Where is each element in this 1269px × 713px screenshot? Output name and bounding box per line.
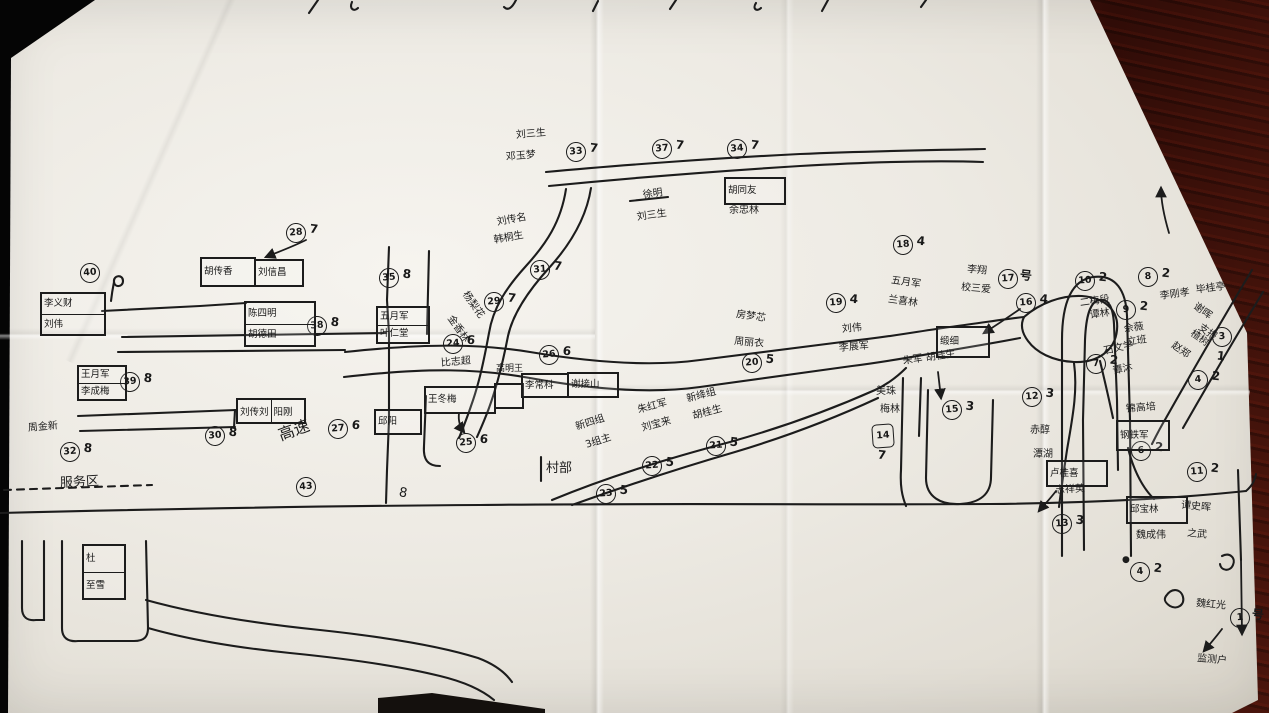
name-label: 志祥英 xyxy=(1055,484,1085,496)
group-number: 5 xyxy=(665,455,675,470)
name-label: 比志超 xyxy=(441,356,472,369)
household-number-circle: 43 xyxy=(295,476,316,497)
name-label: 新四组 xyxy=(574,414,606,433)
group-number: 7 xyxy=(507,291,517,306)
household-number-circle: 26 xyxy=(538,344,559,365)
household-number-circle: 11 xyxy=(1186,461,1207,482)
household-number-circle: 9 xyxy=(1115,299,1136,320)
house-name: 王月军 xyxy=(79,367,125,383)
group-number: 2 xyxy=(1098,270,1108,285)
group-number: 8 xyxy=(83,441,93,456)
house-box: 刘信昌 xyxy=(254,259,304,287)
house-box: 陈四明胡德田 xyxy=(244,301,316,347)
name-label: 魏成伟 xyxy=(1136,531,1166,541)
group-number: 6 xyxy=(479,432,489,447)
name-label: 朱军 胡桂生 xyxy=(902,350,956,367)
house-name: 胡传香 xyxy=(202,259,254,285)
group-number: 2 xyxy=(1139,299,1149,314)
household-number-circle: 1 xyxy=(1229,607,1250,628)
group-number: 号 xyxy=(1019,266,1033,284)
household-number-circle: 7 xyxy=(1085,353,1106,374)
group-number: 7 xyxy=(553,259,563,274)
name-label: 刘宝来 xyxy=(641,416,673,433)
group-number: 6 xyxy=(351,418,361,433)
household-number-circle: 29 xyxy=(483,291,504,312)
house-name: 杜 xyxy=(84,546,124,572)
name-label: 锦高培 xyxy=(1126,402,1157,415)
household-number-circle: 17 xyxy=(997,268,1018,289)
house-name: 邱阳 xyxy=(376,411,420,433)
house-box: 邱宝林 xyxy=(1126,496,1188,524)
household-number-circle: 35 xyxy=(378,267,399,288)
house-box: 钢铁军 xyxy=(1116,420,1170,451)
household-number-circle: 33 xyxy=(565,141,586,162)
house-name: 谢接山 xyxy=(569,374,617,396)
house-name: 陈四明 xyxy=(246,303,314,324)
group-number: 号 xyxy=(1251,605,1265,623)
group-number: 8 xyxy=(402,267,412,282)
name-label: 魏红光 xyxy=(1196,599,1227,612)
house-name: 李成梅 xyxy=(79,383,125,400)
map-annotations-layer: 3373773472873172973583884039832830843246… xyxy=(0,0,1269,713)
group-number: 5 xyxy=(619,483,629,498)
household-number-circle: 25 xyxy=(455,432,476,453)
house-name: 刘传刘 xyxy=(238,400,271,422)
household-number-circle: 28 xyxy=(285,222,306,243)
photo-of-hand-drawn-map: 3373773472873172973583884039832830843246… xyxy=(0,0,1269,713)
name-label: 杨梨花 xyxy=(460,290,485,320)
house-box: 李常科 xyxy=(521,373,569,398)
group-number: 2 xyxy=(1153,561,1163,576)
name-label: 服务区 xyxy=(60,475,100,490)
house-name: 叶仁堂 xyxy=(378,325,428,343)
name-label: 之武 xyxy=(1187,529,1208,541)
house-name: 刘信昌 xyxy=(256,261,302,285)
name-label: 村部 xyxy=(546,462,572,475)
house-name: 李义财 xyxy=(42,294,104,314)
group-number: 7 xyxy=(589,141,599,156)
house-name xyxy=(496,385,522,407)
household-number-circle: 30 xyxy=(204,425,225,446)
group-number: 4 xyxy=(1039,292,1049,307)
household-number-circle: 34 xyxy=(726,138,747,159)
house-name: 卢桂喜 xyxy=(1048,462,1106,485)
group-number: 8 xyxy=(143,371,153,386)
household-number-circle: 22 xyxy=(641,455,662,476)
group-number: 7 xyxy=(309,222,319,237)
group-number: 2 xyxy=(1210,461,1220,476)
name-label: 李翔 xyxy=(967,265,988,277)
group-number: 3 xyxy=(1045,386,1055,401)
name-label: 谭林 xyxy=(1089,308,1110,321)
name-label: 赵郑 xyxy=(1169,341,1191,361)
name-label: 毕桂亭 xyxy=(1195,282,1226,296)
name-label: 赤醇 xyxy=(1030,426,1050,436)
house-name: 王冬梅 xyxy=(426,388,494,412)
household-number-circle: 16 xyxy=(1015,292,1036,313)
household-number-circle: 18 xyxy=(892,234,913,255)
household-number-circle: 14 xyxy=(871,423,895,448)
household-number-circle: 40 xyxy=(79,262,100,283)
name-label: 李刚孝 xyxy=(1159,288,1190,302)
name-label: ● xyxy=(1122,556,1130,565)
name-label: 余忠林 xyxy=(729,206,759,216)
house-box: 邱阳 xyxy=(374,409,422,435)
household-number-circle: 23 xyxy=(595,483,616,504)
group-number: 5 xyxy=(765,352,775,367)
name-label: 校三爱 xyxy=(961,283,992,296)
name-label: 美珠 xyxy=(876,387,896,397)
name-label: 刘三生 xyxy=(636,209,667,223)
name-label: 邓玉梦 xyxy=(506,150,537,163)
house-name: 刘伟 xyxy=(42,314,104,335)
name-label: 徐明 xyxy=(642,188,663,201)
group-number: 8 xyxy=(330,315,340,330)
household-number-circle: 8 xyxy=(1137,266,1158,287)
group-number: 1 xyxy=(1216,349,1226,364)
name-label: 李展军 xyxy=(839,341,870,354)
house-name: 李常科 xyxy=(523,375,567,396)
group-number: 7 xyxy=(877,448,887,463)
name-label: 新绛组 xyxy=(686,387,718,404)
name-label: 3组主 xyxy=(584,433,612,451)
name-label: 房梦芯 xyxy=(735,310,766,324)
household-number-circle: 31 xyxy=(529,259,550,280)
name-label: 8 xyxy=(398,486,408,500)
house-box: 五月军叶仁堂 xyxy=(376,306,430,344)
group-number: 2 xyxy=(1211,369,1221,384)
group-number: 3 xyxy=(965,399,975,414)
group-number: 6 xyxy=(562,344,572,359)
house-box: 胡同友 xyxy=(724,177,786,205)
name-label: 胡桂生 xyxy=(692,404,724,421)
name-label: 刘伟 xyxy=(842,323,863,335)
house-box: 王月军李成梅 xyxy=(77,365,127,401)
house-name: 至雪 xyxy=(84,572,124,599)
name-label: 周金新 xyxy=(28,421,59,434)
household-number-circle: 10 xyxy=(1074,270,1095,291)
name-label: 刘传名 xyxy=(496,213,527,228)
house-name: 胡同友 xyxy=(726,179,784,203)
house-name: 邱宝林 xyxy=(1128,498,1186,522)
household-number-circle: 19 xyxy=(825,292,846,313)
household-number-circle: 20 xyxy=(741,352,762,373)
group-number: 5 xyxy=(729,435,739,450)
name-label: 高明王 xyxy=(496,365,523,374)
name-label: 佘薇 xyxy=(1123,322,1144,335)
household-number-circle: 37 xyxy=(651,138,672,159)
name-label: 刘三生 xyxy=(516,128,547,141)
household-number-circle: 27 xyxy=(327,418,348,439)
house-name: 胡德田 xyxy=(246,324,314,346)
name-label: 朱红军 xyxy=(637,398,669,415)
name-label: 谭沐 xyxy=(1112,363,1134,377)
group-number: 4 xyxy=(849,292,859,307)
household-number-circle: 4 xyxy=(1129,561,1150,582)
household-number-circle: 13 xyxy=(1051,513,1072,534)
house-name: 五月军 xyxy=(378,308,428,325)
household-number-circle: 32 xyxy=(59,441,80,462)
group-number: 8 xyxy=(228,425,238,440)
name-label: 梅林 xyxy=(880,405,900,415)
house-box xyxy=(494,383,524,409)
name-label: 韩桐生 xyxy=(493,231,524,246)
group-number: 3 xyxy=(1075,513,1085,528)
house-box: 李义财刘伟 xyxy=(40,292,106,336)
household-number-circle: 21 xyxy=(705,435,726,456)
name-label: 兰喜林 xyxy=(887,295,918,309)
group-number: 7 xyxy=(675,138,685,153)
group-number: 2 xyxy=(1161,266,1171,281)
name-label: 立班 xyxy=(1126,335,1147,348)
household-number-circle: 15 xyxy=(941,399,962,420)
house-box: 杜至雪 xyxy=(82,544,126,600)
group-number: 7 xyxy=(750,138,760,153)
group-number: 4 xyxy=(916,234,926,249)
name-label: 监测户 xyxy=(1197,654,1228,667)
household-number-circle: 4 xyxy=(1187,369,1208,390)
name-label: 潭湖 xyxy=(1033,450,1053,460)
house-name: 钢铁军 xyxy=(1118,422,1168,449)
name-label: 五月军 xyxy=(890,276,921,290)
house-box: 谢接山 xyxy=(567,372,619,398)
house-box: 胡传香 xyxy=(200,257,256,287)
name-label: 谢晖 xyxy=(1191,302,1213,322)
name-label: 周丽衣 xyxy=(734,337,765,350)
house-box: 王冬梅 xyxy=(424,386,496,414)
household-number-circle: 12 xyxy=(1021,386,1042,407)
